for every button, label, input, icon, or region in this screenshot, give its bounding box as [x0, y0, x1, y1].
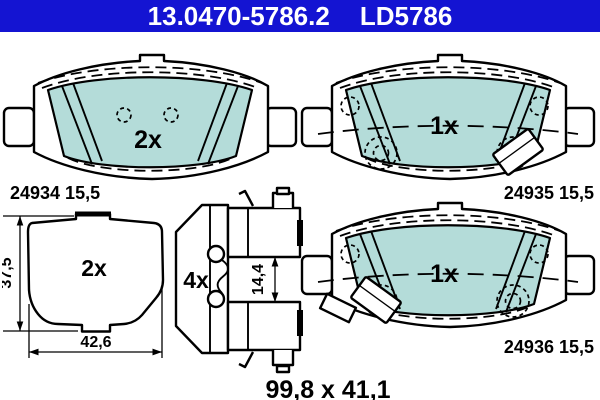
shim-drawing: 37,5 2x 42,6	[2, 208, 174, 364]
variant-code: LD5786	[360, 0, 453, 32]
height-dimension-label: 37,5	[2, 257, 15, 288]
quantity-label-clip: 4x	[183, 267, 209, 293]
quantity-label-bottom-right: 1x	[430, 260, 458, 288]
quantity-label-top-right: 1x	[430, 112, 458, 140]
pad-drawing-bottom-right: 1x	[300, 198, 596, 332]
dimension-gap: 14,4	[250, 257, 278, 302]
gap-dimension-label: 14,4	[250, 264, 267, 295]
header-bar: 13.0470-5786.2 LD5786	[0, 0, 600, 32]
fitting-clip-drawing: 14,4 4x	[170, 186, 324, 374]
width-dimension-label: 42,6	[80, 334, 111, 351]
pad-part-label-top-right: 24935 15,5	[430, 183, 594, 204]
quantity-label-top-left: 2x	[134, 126, 162, 154]
kit-dimensions-label: 99,8 x 41,1	[226, 376, 430, 400]
clip-channel-top	[228, 208, 300, 257]
pad-drawing-top-left: 2x	[2, 50, 298, 184]
brake-pad-set-drawing: 13.0470-5786.2 LD5786 2x	[0, 0, 600, 400]
pad-part-label-top-left: 24934 15,5	[10, 183, 100, 204]
pad-part-label-bottom-right: 24936 15,5	[430, 337, 594, 358]
clip-channel-bottom	[228, 302, 300, 350]
part-number: 13.0470-5786.2	[148, 0, 330, 32]
pad-drawing-top-right: 1x	[300, 50, 596, 184]
quantity-label-shim: 2x	[81, 255, 107, 281]
